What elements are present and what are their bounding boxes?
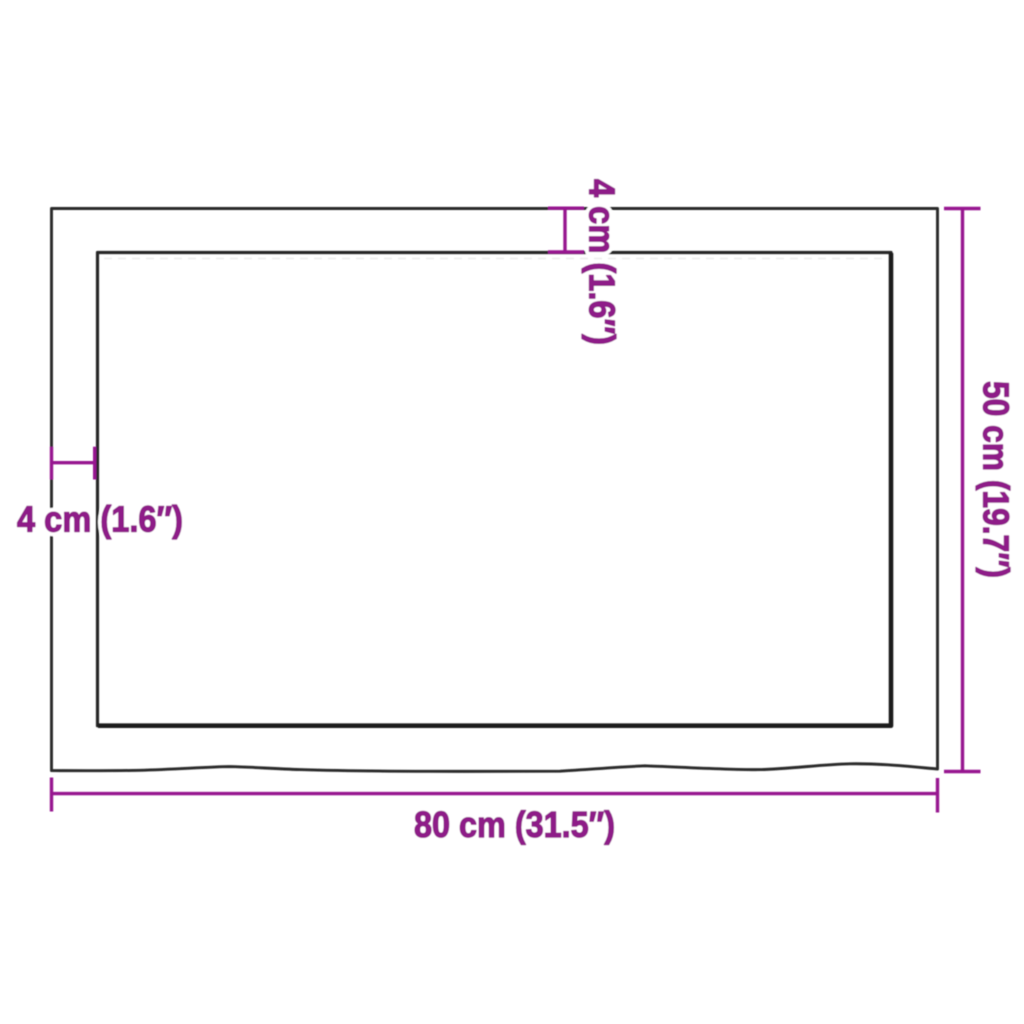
svg-text:50 cm (19.7″): 50 cm (19.7″): [976, 381, 1017, 578]
svg-text:4 cm (1.6″): 4 cm (1.6″): [17, 499, 183, 540]
svg-text:4 cm (1.6″): 4 cm (1.6″): [582, 179, 623, 345]
svg-text:80 cm (31.5″): 80 cm (31.5″): [414, 804, 615, 845]
